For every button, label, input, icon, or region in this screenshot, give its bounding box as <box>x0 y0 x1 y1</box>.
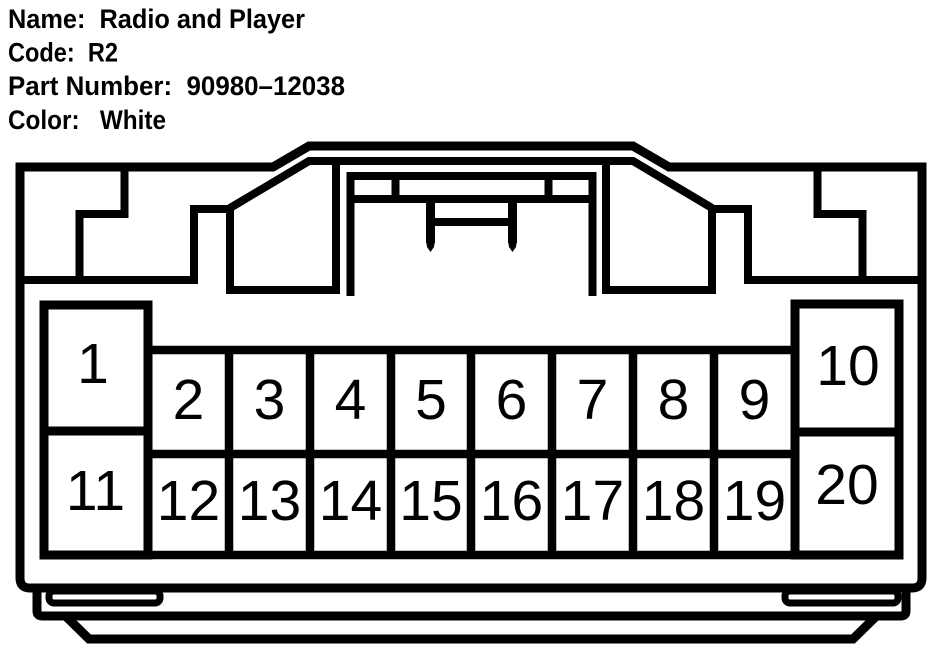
svg-text:4: 4 <box>335 368 367 432</box>
svg-text:3: 3 <box>254 368 286 432</box>
svg-text:Code: R2: Code: R2 <box>8 38 118 68</box>
svg-text:1: 1 <box>77 332 109 396</box>
svg-text:12: 12 <box>157 469 220 533</box>
svg-text:9: 9 <box>739 368 771 432</box>
svg-text:7: 7 <box>577 368 609 432</box>
svg-text:18: 18 <box>642 469 705 533</box>
svg-text:Name: Radio and Player: Name: Radio and Player <box>8 4 305 34</box>
svg-text:15: 15 <box>399 469 462 533</box>
svg-text:Color: White: Color: White <box>8 105 166 135</box>
svg-text:19: 19 <box>723 469 786 533</box>
svg-text:14: 14 <box>319 469 382 533</box>
svg-text:8: 8 <box>658 368 690 432</box>
svg-text:17: 17 <box>561 469 624 533</box>
svg-text:2: 2 <box>173 368 205 432</box>
svg-text:13: 13 <box>238 469 301 533</box>
svg-text:6: 6 <box>496 368 528 432</box>
svg-text:20: 20 <box>815 453 878 517</box>
svg-text:11: 11 <box>66 459 125 523</box>
svg-text:5: 5 <box>415 368 447 432</box>
svg-text:16: 16 <box>480 469 543 533</box>
svg-text:Part Number: 90980–12038: Part Number: 90980–12038 <box>8 71 345 101</box>
svg-text:10: 10 <box>816 334 879 398</box>
